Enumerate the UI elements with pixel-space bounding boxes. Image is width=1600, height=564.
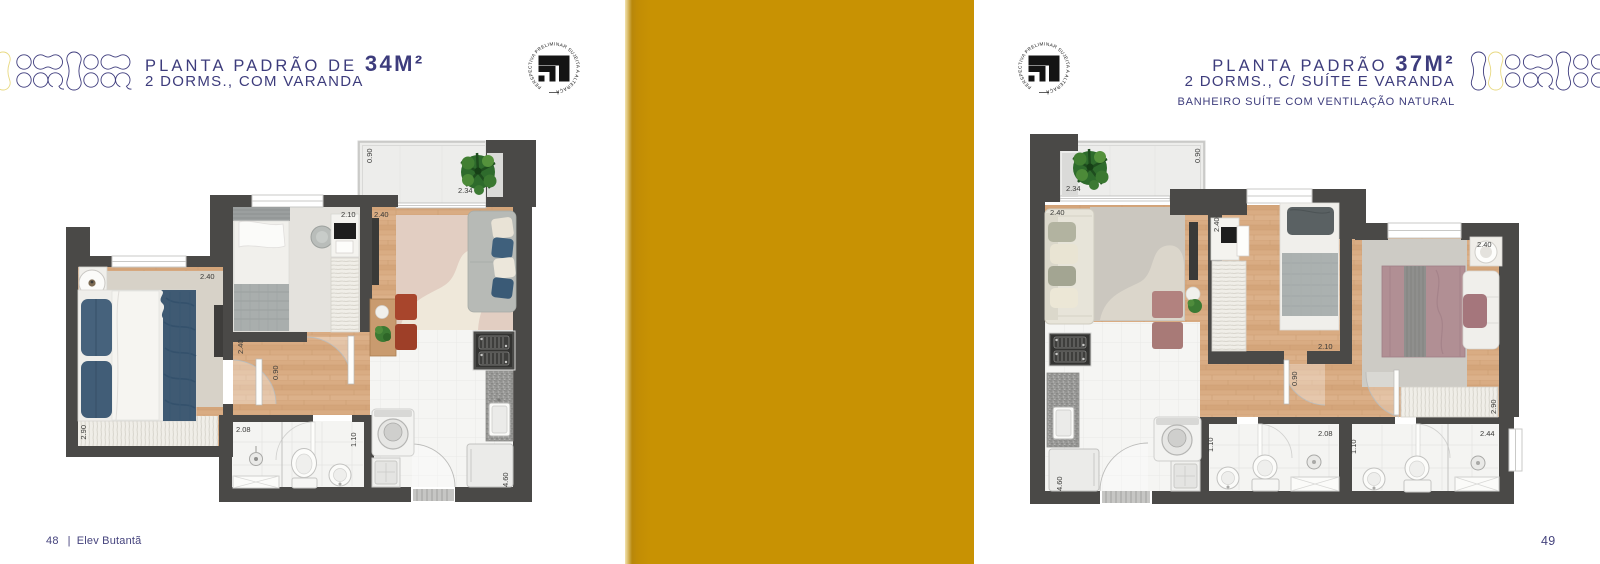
svg-text:1.10: 1.10 (1349, 439, 1358, 454)
svg-text:1.10: 1.10 (349, 432, 358, 447)
svg-text:1.10: 1.10 (1206, 437, 1215, 452)
svg-text:2.40: 2.40 (1477, 240, 1492, 249)
svg-text:0.90: 0.90 (271, 365, 280, 380)
svg-text:2.90: 2.90 (1489, 399, 1498, 414)
svg-text:2.10: 2.10 (341, 210, 356, 219)
svg-text:0.90: 0.90 (1290, 371, 1299, 386)
svg-text:2.40: 2.40 (1050, 208, 1065, 217)
svg-text:2.40: 2.40 (236, 339, 245, 354)
svg-text:2.40: 2.40 (200, 272, 215, 281)
svg-text:2.34: 2.34 (458, 186, 473, 195)
svg-text:4.60: 4.60 (501, 472, 510, 487)
svg-text:0.90: 0.90 (365, 148, 374, 163)
svg-text:0.90: 0.90 (1193, 148, 1202, 163)
svg-text:2.34: 2.34 (1066, 184, 1081, 193)
svg-text:2.40: 2.40 (374, 210, 389, 219)
svg-text:4.60: 4.60 (1055, 476, 1064, 491)
svg-text:2.10: 2.10 (1318, 342, 1333, 351)
svg-text:2.40: 2.40 (1212, 217, 1221, 232)
svg-text:2.44: 2.44 (1480, 429, 1495, 438)
svg-text:2.08: 2.08 (236, 425, 251, 434)
svg-text:2.08: 2.08 (1318, 429, 1333, 438)
svg-text:2.90: 2.90 (79, 425, 88, 440)
